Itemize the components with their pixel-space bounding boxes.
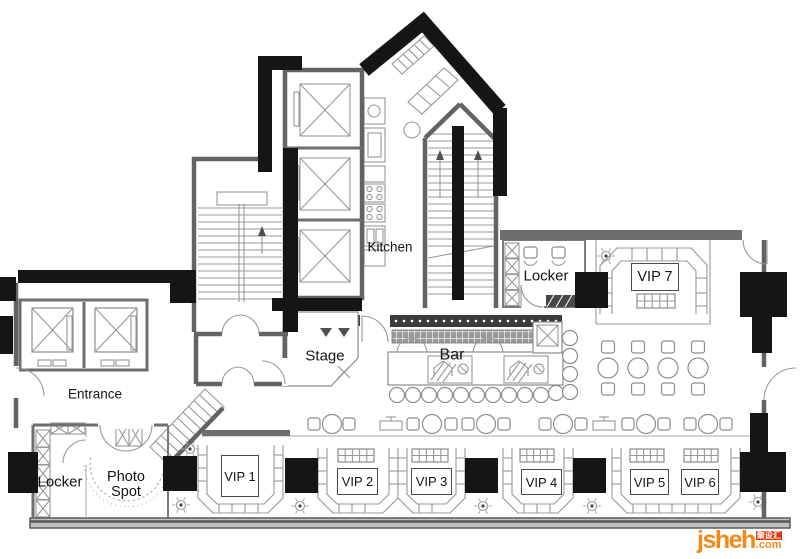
watermark[interactable]: jsheh 聚设汇 .com (697, 529, 782, 552)
room-label-bar: Bar (440, 348, 465, 363)
floor-plan: Kitchen Stage Bar Entrance Locker Locker… (0, 0, 800, 559)
room-label-entrance: Entrance (68, 387, 122, 402)
room-label-vip3: VIP 3 (411, 468, 452, 495)
room-label-locker-lower: Locker (37, 475, 82, 490)
watermark-brand: jsheh (697, 529, 755, 552)
room-label-vip5: VIP 5 (630, 469, 669, 495)
room-label-vip1: VIP 1 (221, 455, 259, 497)
watermark-suffix: .com (756, 540, 782, 551)
room-label-kitchen: Kitchen (367, 240, 412, 255)
room-label-locker-upper: Locker (523, 269, 568, 284)
room-label-vip4: VIP 4 (521, 469, 562, 495)
room-label-vip6: VIP 6 (681, 469, 719, 495)
room-label-stage: Stage (305, 349, 344, 364)
photo-spot-line1: Photo (107, 470, 145, 485)
room-label-vip2: VIP 2 (337, 468, 378, 495)
room-label-vip7: VIP 7 (631, 263, 679, 291)
room-label-photo-spot: Photo Spot (107, 470, 145, 500)
photo-spot-line2: Spot (107, 485, 145, 500)
